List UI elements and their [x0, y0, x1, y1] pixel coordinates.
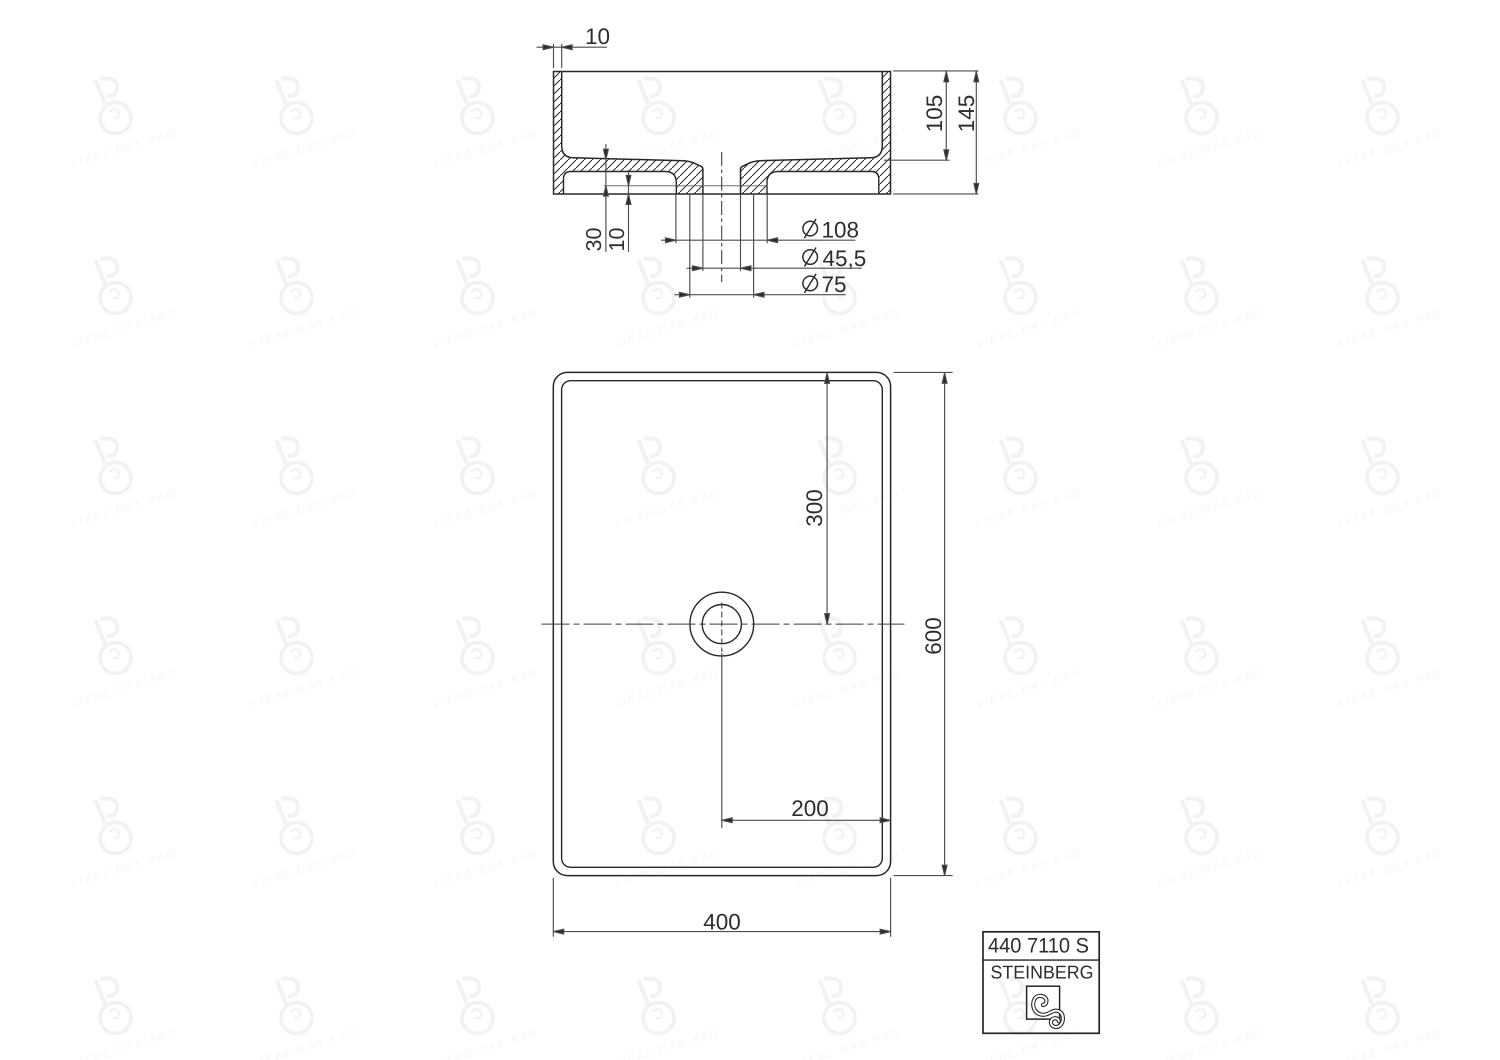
- svg-text:300: 300: [802, 489, 827, 527]
- svg-text:45,5: 45,5: [823, 246, 867, 271]
- svg-text:440 7110 S: 440 7110 S: [988, 935, 1089, 958]
- svg-text:105: 105: [922, 95, 947, 133]
- svg-text:200: 200: [791, 796, 829, 821]
- svg-text:145: 145: [954, 95, 979, 133]
- svg-text:108: 108: [822, 217, 860, 242]
- svg-text:75: 75: [822, 272, 847, 297]
- svg-text:STEINBERG: STEINBERG: [991, 962, 1094, 983]
- svg-text:30: 30: [582, 228, 606, 252]
- svg-text:600: 600: [921, 617, 946, 655]
- svg-text:10: 10: [585, 24, 610, 49]
- svg-text:10: 10: [605, 228, 629, 252]
- svg-text:400: 400: [703, 909, 741, 934]
